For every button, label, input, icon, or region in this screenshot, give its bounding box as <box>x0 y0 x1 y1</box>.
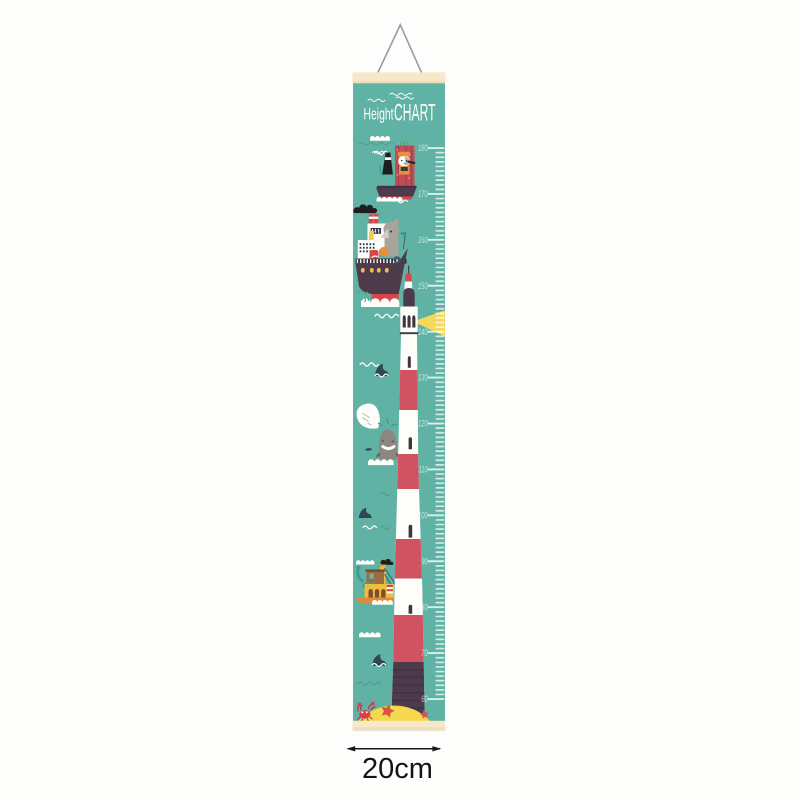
svg-text:110: 110 <box>419 464 429 475</box>
svg-text:60: 60 <box>421 694 428 705</box>
svg-text:170: 170 <box>418 189 428 200</box>
svg-text:80: 80 <box>421 602 428 613</box>
svg-text:160: 160 <box>418 234 428 245</box>
svg-text:Height: Height <box>364 105 394 124</box>
svg-text:180: 180 <box>418 143 428 154</box>
svg-text:90: 90 <box>421 556 428 567</box>
svg-text:20cm: 20cm <box>362 753 433 785</box>
svg-text:150: 150 <box>418 280 428 291</box>
svg-text:70: 70 <box>421 648 428 659</box>
svg-text:120: 120 <box>418 418 428 429</box>
svg-text:CHART: CHART <box>394 100 436 127</box>
svg-text:100: 100 <box>418 510 428 521</box>
svg-text:140: 140 <box>418 326 428 337</box>
svg-text:130: 130 <box>418 372 428 383</box>
